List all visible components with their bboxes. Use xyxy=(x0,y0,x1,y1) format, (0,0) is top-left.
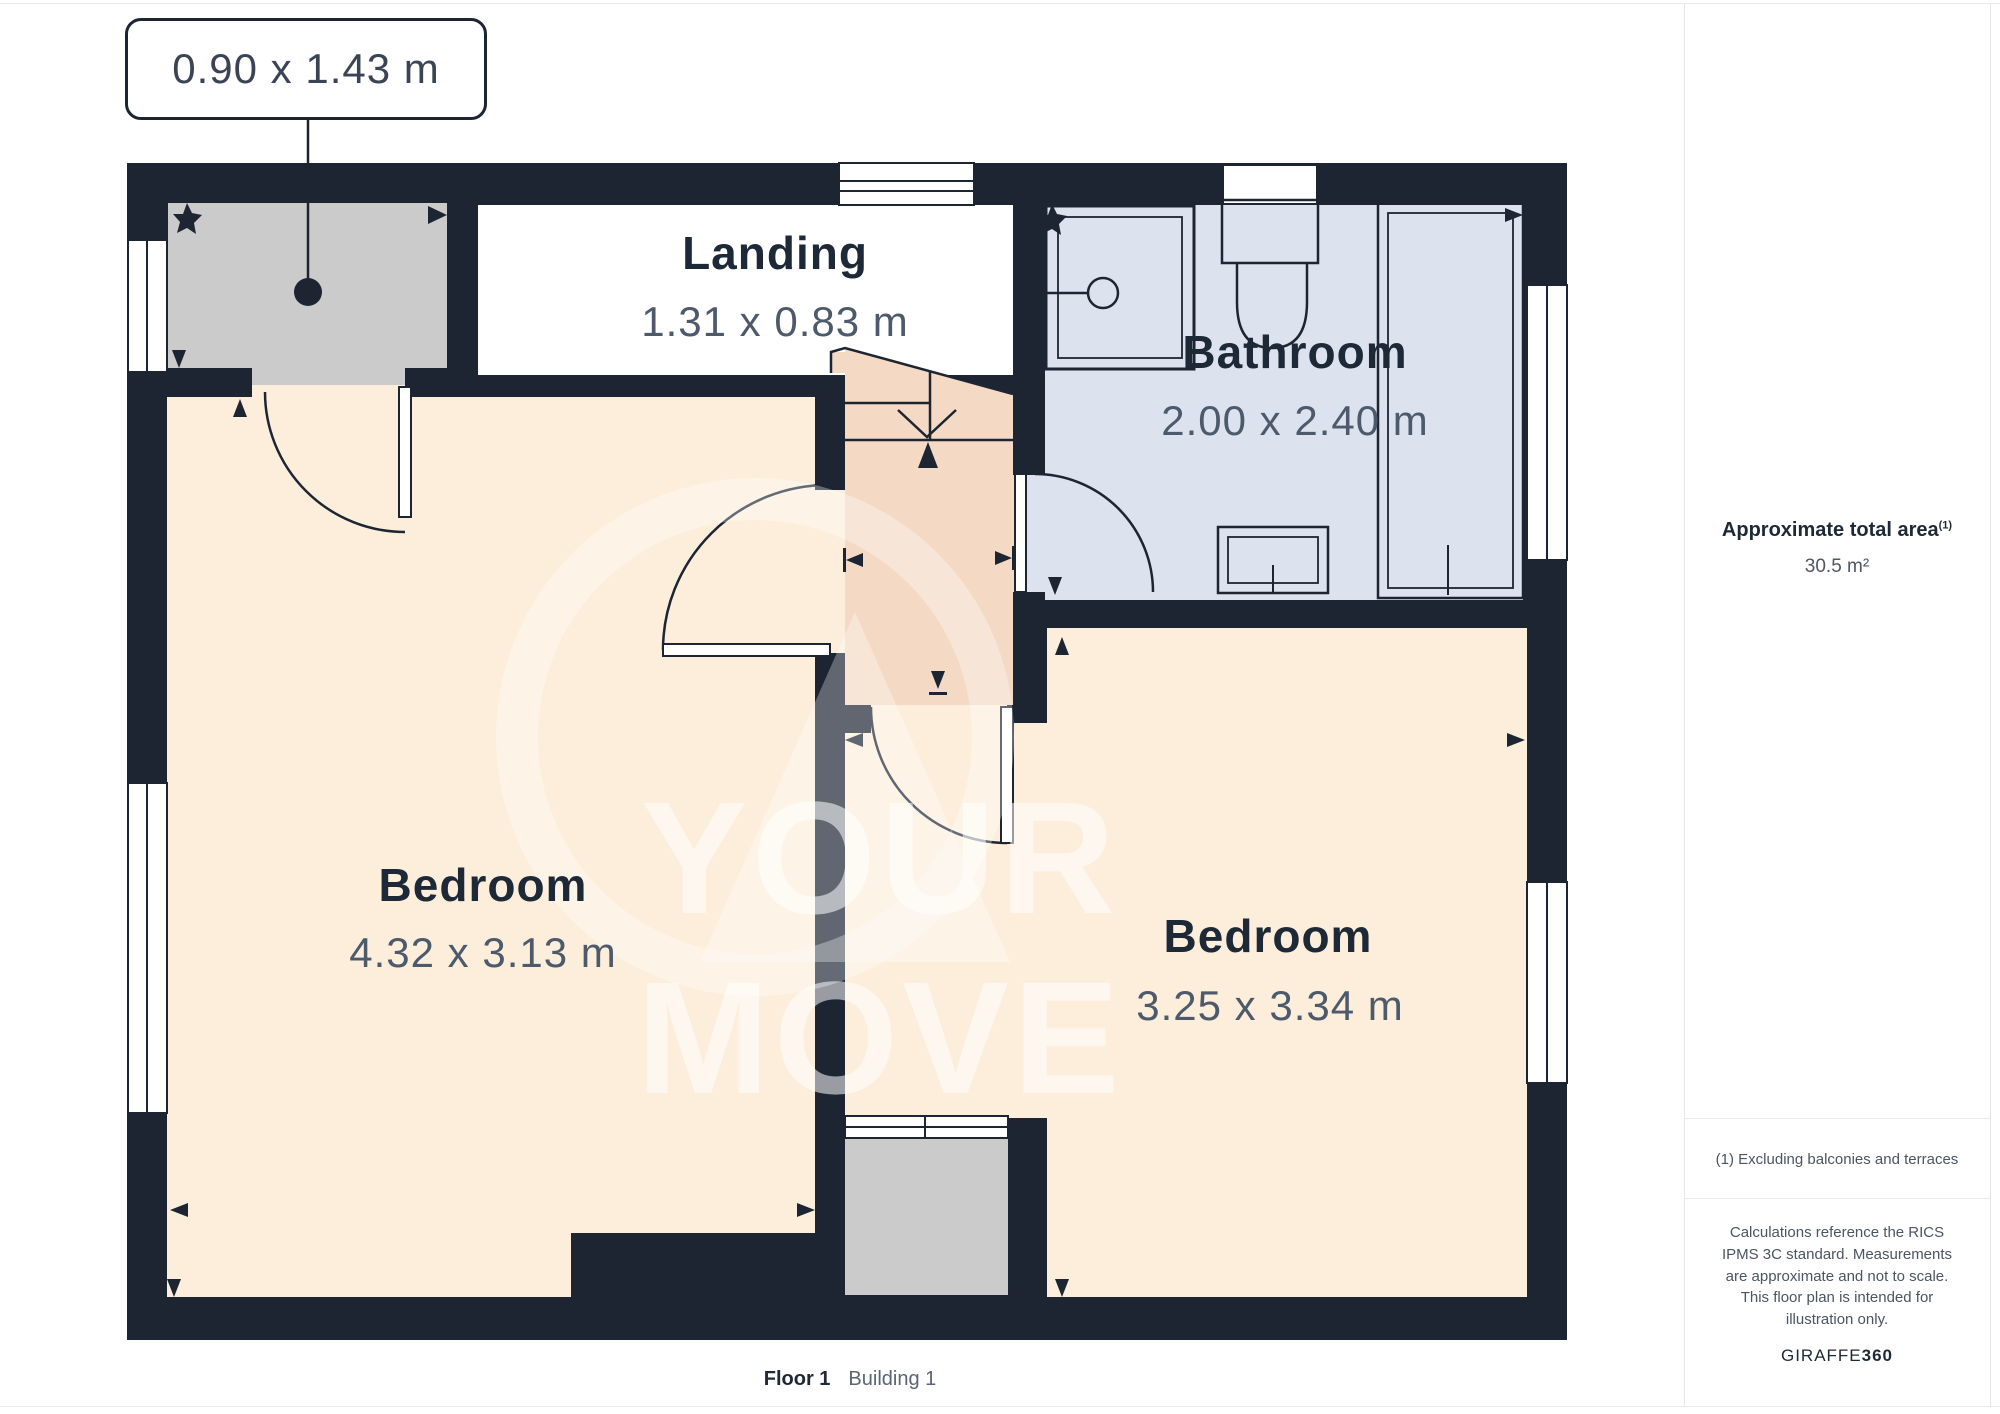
bedroom-left-dimensions: 4.32 x 3.13 m xyxy=(349,929,616,977)
floor-label: Floor 1 xyxy=(764,1368,831,1390)
disclaimer: Calculations reference the RICS IPMS 3C … xyxy=(1712,1222,1962,1331)
footnote: (1) Excluding balconies and terraces xyxy=(1692,1151,1982,1168)
bottom-divider xyxy=(0,1406,2000,1407)
bedroom-right-label: Bedroom xyxy=(1164,909,1373,963)
window-bedroom-right xyxy=(1527,882,1567,1083)
landing-dimensions: 1.31 x 0.83 m xyxy=(641,298,908,346)
landing-label: Landing xyxy=(682,226,868,280)
brand-name: GIRAFFE xyxy=(1781,1346,1862,1365)
sidebar-right-border xyxy=(1990,3,1991,1406)
bedroom-left-floor xyxy=(167,397,815,1297)
total-area-value: 30.5 m² xyxy=(1684,556,1990,578)
total-area-heading: Approximate total area(1) xyxy=(1684,519,1990,542)
total-area-label: Approximate total area xyxy=(1722,519,1939,541)
window-bathroom-right xyxy=(1527,285,1567,560)
sidebar-divider-2 xyxy=(1684,1198,1990,1199)
window-landing-top xyxy=(839,163,974,205)
brand-suffix: 360 xyxy=(1862,1346,1893,1365)
bedroom-left-label: Bedroom xyxy=(379,858,588,912)
dimension-callout: 0.90 x 1.43 m xyxy=(125,18,487,120)
floorplan-page: YOUR MOVE 0.90 x 1.43 m Landing 1.31 x 0… xyxy=(0,0,2000,1414)
balcony-floor xyxy=(845,1138,1008,1295)
callout-dimension: 0.90 x 1.43 m xyxy=(172,45,439,93)
toilet-recess xyxy=(1224,166,1316,203)
sidebar-divider-1 xyxy=(1684,1118,1990,1119)
window-storage-left xyxy=(128,240,167,372)
window-balcony xyxy=(845,1116,1008,1138)
floorplan-drawing xyxy=(0,0,2000,1414)
building-label: Building 1 xyxy=(848,1368,936,1390)
floor-caption: Floor 1Building 1 xyxy=(0,1368,1700,1391)
bedroom-right-dimensions: 3.25 x 3.34 m xyxy=(1136,982,1403,1030)
brand-logo: GIRAFFE360 xyxy=(1684,1346,1990,1366)
bathroom-dimensions: 2.00 x 2.40 m xyxy=(1161,397,1428,445)
sidebar-left-border xyxy=(1684,3,1685,1406)
window-bedroom-left xyxy=(128,783,167,1113)
bathroom-label: Bathroom xyxy=(1182,325,1407,379)
total-area-superscript: (1) xyxy=(1939,519,1952,531)
